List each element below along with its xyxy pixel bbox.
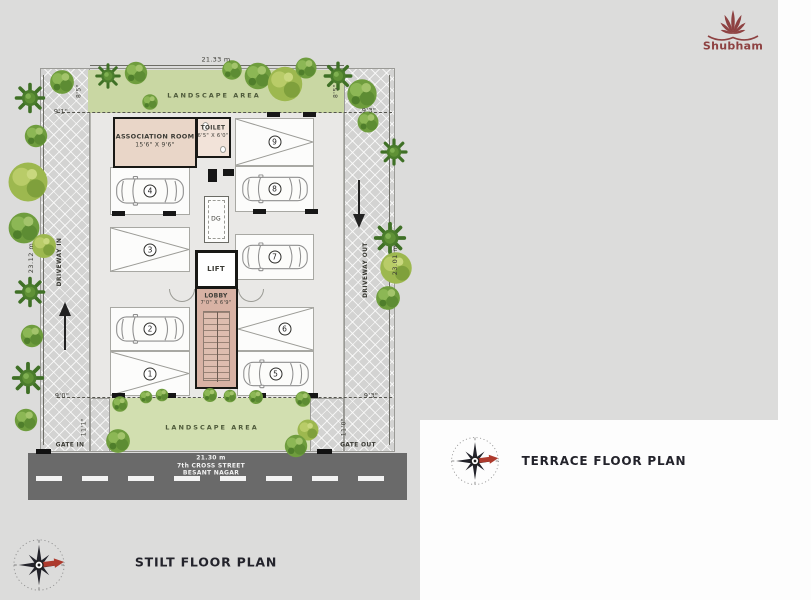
wheel-stop (163, 211, 176, 216)
gate-out-label: GATE OUT (340, 443, 376, 450)
lift-label: LIFT (207, 265, 225, 273)
parking-number: 8 (268, 183, 281, 196)
gate-out-bar (317, 449, 332, 454)
wheel-stop (253, 209, 266, 214)
landscape-bottom-label: LANDSCAPE AREA (165, 424, 258, 431)
gate-in-apron (90, 398, 110, 452)
dim-landscape-left: 8'5" (76, 84, 83, 98)
wheel-stop (112, 211, 125, 216)
dim-line-right (389, 75, 390, 445)
building-line-bottom (57, 397, 392, 398)
association-room-size: 15'6" X 9'6" (135, 143, 174, 150)
parking-space-1: 1 (110, 351, 190, 396)
parking-number: 4 (144, 185, 157, 198)
wheel-stop (112, 393, 125, 398)
wheel-stop (303, 112, 316, 117)
wheel-stop (305, 209, 318, 214)
parking-space-3: 3 (110, 227, 190, 272)
floor-plan-sheet: 1 2 3 4 5 6 7 8 (0, 0, 811, 600)
wheel-stop (267, 112, 280, 117)
terrace-floor-plan: OPEN TERRACE OPEN TERRACE OTS LIFT LOBBY… (420, 0, 811, 600)
parking-space-2: 2 (110, 307, 190, 351)
wheel-stop (305, 393, 318, 398)
wheel-stop (163, 393, 176, 398)
parking-space-5: 5 (237, 351, 314, 396)
street-area: BESANT NAGAR (183, 471, 239, 478)
dim-top-left: 9'1" (54, 108, 68, 115)
dim-landscape-right: 8'5" (333, 84, 340, 98)
staircase (203, 311, 230, 381)
dim-bottom-right: 9'3" (364, 392, 378, 399)
parking-number: 1 (144, 367, 157, 380)
compass-rose-icon (448, 434, 502, 488)
driveway-in-label: DRIVEWAY IN (57, 238, 63, 287)
stilt-floor-plan: 1 2 3 4 5 6 7 8 (0, 0, 420, 600)
landscape-top-label: LANDSCAPE AREA (167, 92, 260, 99)
stair-rail (217, 312, 218, 382)
shubham-logo-text: Shubham (703, 40, 763, 53)
column-block (223, 169, 234, 176)
wheel-stop (253, 393, 266, 398)
dim-line-top (90, 65, 344, 66)
dim-left-height: 23.12 m (27, 243, 35, 274)
parking-number: 3 (144, 243, 157, 256)
toilet-size: 6'5" X 6'0" (198, 134, 229, 140)
toilet-label: TOILET (201, 126, 225, 133)
column-block (208, 169, 217, 182)
parking-number: 9 (268, 136, 281, 149)
dim-bottom-left: 9'0" (55, 392, 69, 399)
gate-in-bar (36, 449, 51, 454)
parking-number: 2 (144, 323, 157, 336)
gate-in-label: GATE IN (56, 443, 85, 450)
gate-out-apron (310, 398, 344, 452)
driveway-out-label: DRIVEWAY OUT (363, 242, 369, 298)
dim-gate-out: 11'0" (341, 418, 348, 436)
stilt-plan-title: STILT FLOOR PLAN (135, 555, 277, 570)
shubham-logo-icon (700, 4, 766, 42)
parking-space-9: 9 (235, 118, 314, 166)
dim-top-right: 9'3" (362, 107, 376, 114)
lobby-size: 7'0" X 6'9" (201, 301, 232, 307)
dim-gate-in: 11'1" (81, 418, 88, 436)
parking-number: 6 (278, 323, 291, 336)
parking-space-4: 4 (110, 167, 190, 215)
parking-space-6: 6 (237, 307, 314, 351)
dim-line-left (43, 75, 44, 445)
parking-number: 5 (269, 367, 282, 380)
association-room-label: ASSOCIATION ROOM (116, 133, 195, 140)
arrow-down-icon (352, 178, 366, 230)
parking-number: 7 (268, 251, 281, 264)
dg-label: DG (211, 217, 221, 224)
parking-space-7: 7 (235, 234, 314, 280)
compass-rose-icon (10, 536, 68, 594)
basin-fixture (220, 146, 226, 153)
terrace-plan-title: TERRACE FLOOR PLAN (522, 454, 687, 468)
parking-space-8: 8 (235, 166, 314, 212)
dim-right-height: 23.01 m (391, 245, 399, 276)
dim-bottom-width: 21.30 m (196, 456, 225, 463)
dim-top-width: 21.33 m (201, 56, 230, 63)
arrow-up-icon (58, 300, 72, 352)
building-line-top (57, 112, 392, 113)
